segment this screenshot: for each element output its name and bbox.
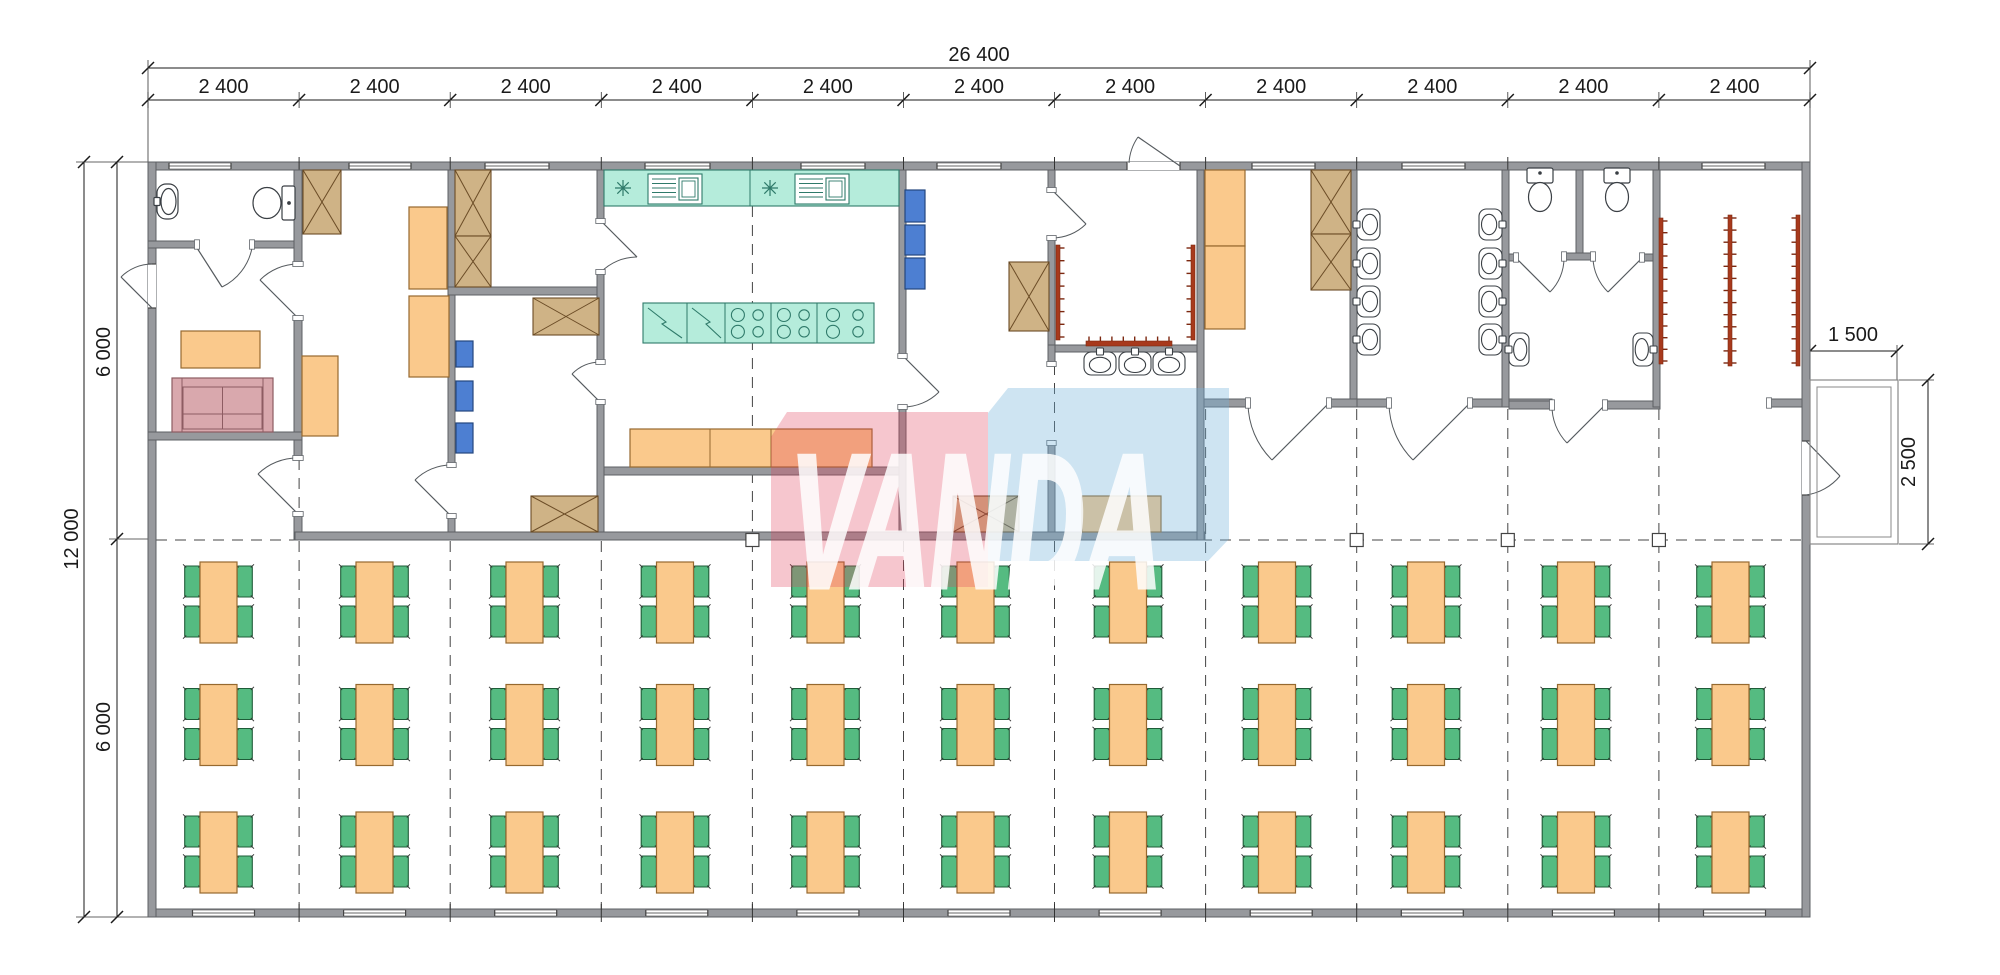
svg-text:2 400: 2 400 — [198, 76, 248, 98]
svg-text:VANDA: VANDA — [790, 416, 1162, 628]
svg-text:2 400: 2 400 — [1709, 76, 1759, 98]
svg-text:2 400: 2 400 — [350, 76, 400, 98]
svg-text:2 500: 2 500 — [1898, 437, 1920, 487]
svg-text:2 400: 2 400 — [954, 76, 1004, 98]
svg-text:2 400: 2 400 — [1558, 76, 1608, 98]
svg-text:2 400: 2 400 — [652, 76, 702, 98]
svg-text:26 400: 26 400 — [948, 44, 1009, 66]
svg-text:2 400: 2 400 — [501, 76, 551, 98]
svg-text:6 000: 6 000 — [93, 702, 115, 752]
svg-text:2 400: 2 400 — [1105, 76, 1155, 98]
svg-text:1 500: 1 500 — [1828, 324, 1878, 346]
svg-text:6 000: 6 000 — [93, 327, 115, 377]
svg-text:2 400: 2 400 — [1407, 76, 1457, 98]
svg-text:12 000: 12 000 — [61, 508, 83, 569]
svg-text:2 400: 2 400 — [803, 76, 853, 98]
svg-text:2 400: 2 400 — [1256, 76, 1306, 98]
